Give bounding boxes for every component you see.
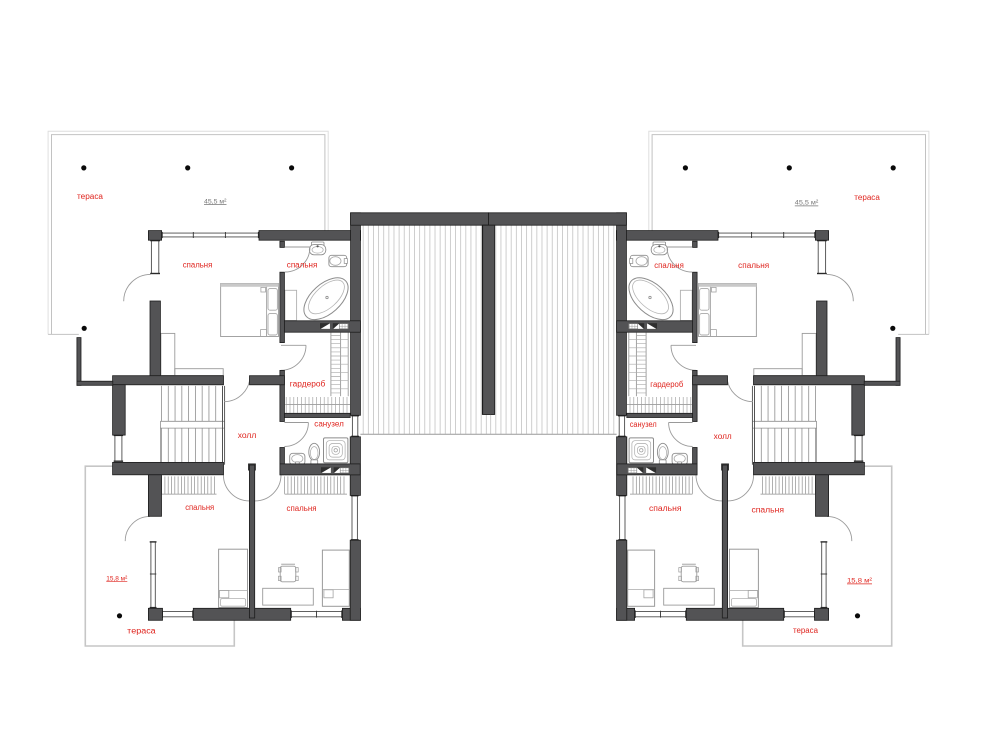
- svg-text:спальня: спальня: [287, 260, 318, 269]
- svg-text:спальня: спальня: [183, 260, 213, 269]
- svg-text:холл: холл: [714, 432, 732, 441]
- svg-text:гардероб: гардероб: [290, 379, 326, 388]
- svg-text:тераса: тераса: [127, 626, 156, 635]
- svg-text:спальня: спальня: [654, 261, 684, 270]
- svg-text:гардероб: гардероб: [650, 380, 683, 389]
- svg-text:тераса: тераса: [793, 626, 819, 635]
- svg-text:спальня: спальня: [185, 503, 214, 512]
- svg-text:санузел: санузел: [314, 419, 344, 428]
- svg-text:спальня: спальня: [649, 504, 682, 513]
- svg-text:спальня: спальня: [752, 506, 785, 515]
- svg-text:холл: холл: [238, 431, 257, 440]
- svg-text:санузел: санузел: [630, 420, 657, 429]
- svg-text:спальня: спальня: [738, 261, 769, 270]
- svg-text:спальня: спальня: [287, 504, 317, 513]
- svg-text:тераса: тераса: [854, 193, 880, 202]
- svg-text:15,8 м²: 15,8 м²: [847, 578, 873, 585]
- svg-text:тераса: тераса: [77, 192, 104, 201]
